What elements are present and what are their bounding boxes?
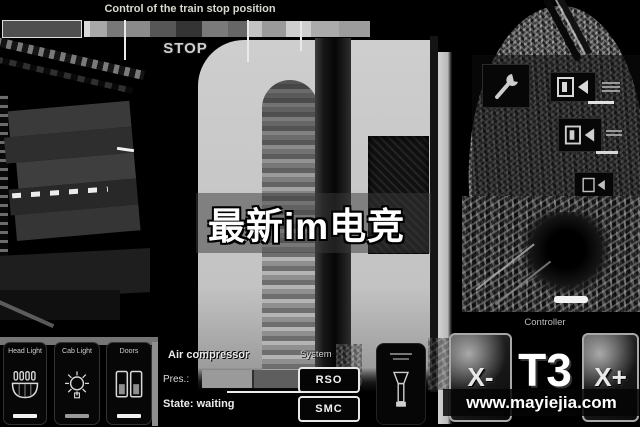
gauge-segment [202, 21, 228, 37]
gauge-segment [107, 21, 125, 37]
cab-dashboard-shadow [0, 290, 120, 320]
indicator-underline [596, 151, 618, 154]
site-watermark-text: www.mayiejia.com [466, 393, 617, 413]
gauge-segment [150, 21, 176, 37]
air-compressor-title: Air compressor [168, 349, 298, 361]
wrench-icon [491, 71, 521, 101]
door-indicator-button-2[interactable] [558, 118, 602, 152]
center-watermark: 最新im电竞 [196, 193, 431, 253]
head-light-label: Head Light [8, 348, 42, 356]
gauge-segment [3, 21, 81, 37]
gauge-segment [125, 21, 150, 37]
door-indicator-button-3[interactable] [574, 172, 614, 198]
station-view [462, 0, 640, 312]
smc-button[interactable]: SMC [298, 396, 360, 422]
cab-window-bands [2, 101, 143, 262]
door-arrow-icon [555, 76, 591, 98]
indicator-dashes [602, 80, 620, 94]
gauge-segment [228, 21, 247, 37]
gauge-segment [262, 21, 286, 37]
gauge-divider [300, 21, 302, 51]
track-area [462, 196, 640, 312]
cab-light-indicator [65, 414, 89, 418]
stop-position-title: Control of the train stop position [40, 3, 340, 15]
stop-zone-label: STOP [124, 40, 247, 57]
site-watermark: www.mayiejia.com [443, 389, 640, 416]
head-light-button[interactable]: Head Light [3, 342, 47, 425]
cab-light-label: Cab Light [60, 348, 94, 356]
tunnel-shadow [524, 212, 608, 296]
pressure-label: Pres.: [163, 374, 189, 385]
controller-title: Controller [505, 317, 585, 328]
brake-handle-icon [387, 360, 415, 424]
gauge-divider [247, 20, 249, 62]
doors-button[interactable]: Doors [106, 342, 152, 425]
gauge-segment [311, 21, 339, 37]
head-light-indicator [13, 414, 37, 418]
game-screen: Control of the train stop position STOP [0, 0, 640, 427]
gauge-segment [176, 21, 202, 37]
gauge-segment [90, 21, 107, 37]
headlight-icon [8, 356, 42, 414]
emergency-brake-button[interactable] [376, 343, 426, 425]
indicator-underline [588, 101, 614, 104]
indicator-dashes [606, 128, 622, 138]
compressor-state-label: State: waiting [163, 398, 235, 410]
system-title: System [300, 349, 332, 360]
stop-gauge-segments [3, 21, 370, 37]
pressure-bar-fill [202, 370, 252, 388]
rso-button[interactable]: RSO [298, 367, 360, 393]
stop-gauge [3, 21, 373, 37]
center-watermark-text: 最新im电竞 [196, 196, 405, 250]
maintenance-button[interactable] [482, 64, 530, 108]
gauge-segment [339, 21, 370, 37]
door-arrow-icon [563, 124, 597, 146]
doors-indicator [117, 414, 141, 418]
gauge-divider [124, 20, 126, 60]
door-arrow-icon [581, 177, 607, 193]
double-door-icon [112, 356, 146, 414]
panel-edge-strip [152, 342, 158, 426]
platform-sign-light [554, 296, 588, 303]
bulb-icon [61, 356, 93, 414]
doors-label: Doors [112, 348, 146, 356]
door-indicator-button-1[interactable] [550, 72, 596, 102]
illegible-label-line [390, 353, 412, 355]
gauge-segment [247, 21, 262, 37]
gauge-segment [286, 21, 311, 37]
cab-light-button[interactable]: Cab Light [54, 342, 100, 425]
